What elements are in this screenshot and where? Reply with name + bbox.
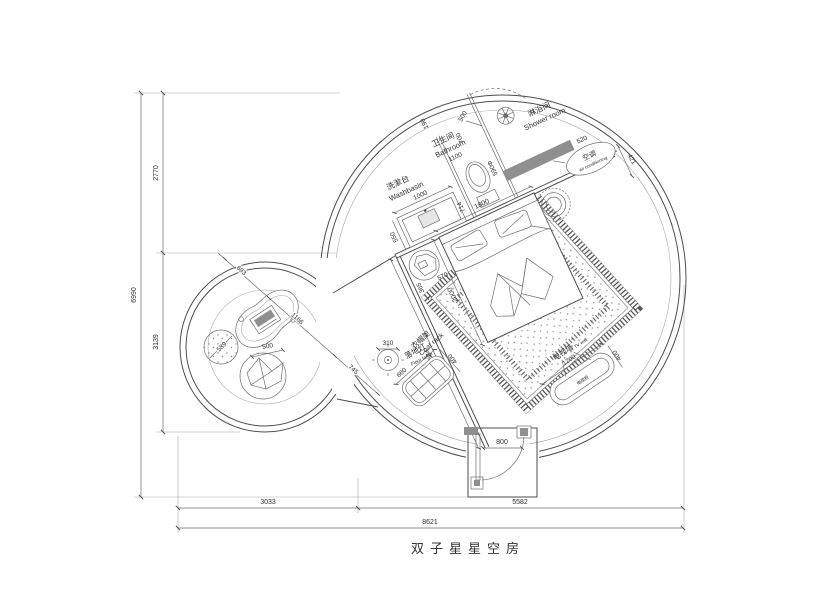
dim-counter-depth: 550 <box>389 230 400 243</box>
dim-ac-offset: 421 <box>626 153 637 166</box>
dim-bathroom-a: 190 <box>419 117 430 130</box>
dim-desk-a: 693 <box>235 265 248 278</box>
dim-coatrack-width: 660 <box>395 366 408 379</box>
drawing-title: 双子星星空房 <box>411 541 525 556</box>
dim-door-width: 800 <box>496 439 508 446</box>
floorplan-drawing: 6990 2770 3139 3033 5582 8621 <box>0 0 837 592</box>
shower-bench <box>503 140 575 181</box>
dim-left-bottom: 3139 <box>153 334 160 350</box>
dim-tv-depth: 400 <box>611 348 623 361</box>
dim-coatrack-depth: 400 <box>446 352 459 365</box>
pouf: 589 <box>204 330 238 364</box>
dim-overall-height: 6990 <box>131 287 138 303</box>
shower-head-icon <box>494 104 517 127</box>
dim-bed-width: 1800 <box>473 198 490 211</box>
dim-bedside-b: 570 <box>436 271 449 282</box>
dim-shower-wall: 520 <box>576 135 589 146</box>
dim-left-top: 2770 <box>153 165 160 181</box>
air-conditioner: 空调 air conditioning <box>553 135 620 186</box>
cushion: 500 <box>240 342 286 399</box>
dim-lamp-dia: 310 <box>383 340 394 347</box>
suite-group: 550 1000 洗漱台 Washbasin 714 卫生间 Bathroom … <box>333 47 707 455</box>
dim-bottom-right: 5582 <box>512 499 528 506</box>
dim-bottom-left: 3033 <box>260 499 276 506</box>
dim-cushion-dia: 500 <box>262 342 274 351</box>
floorplan-page: 6990 2770 3139 3033 5582 8621 <box>0 0 837 592</box>
dim-overall-width: 8621 <box>422 519 438 526</box>
dimension-left-column: 6990 2770 3139 <box>131 91 468 499</box>
opening-small-right <box>332 292 354 394</box>
entry-door: 800 <box>464 426 537 497</box>
